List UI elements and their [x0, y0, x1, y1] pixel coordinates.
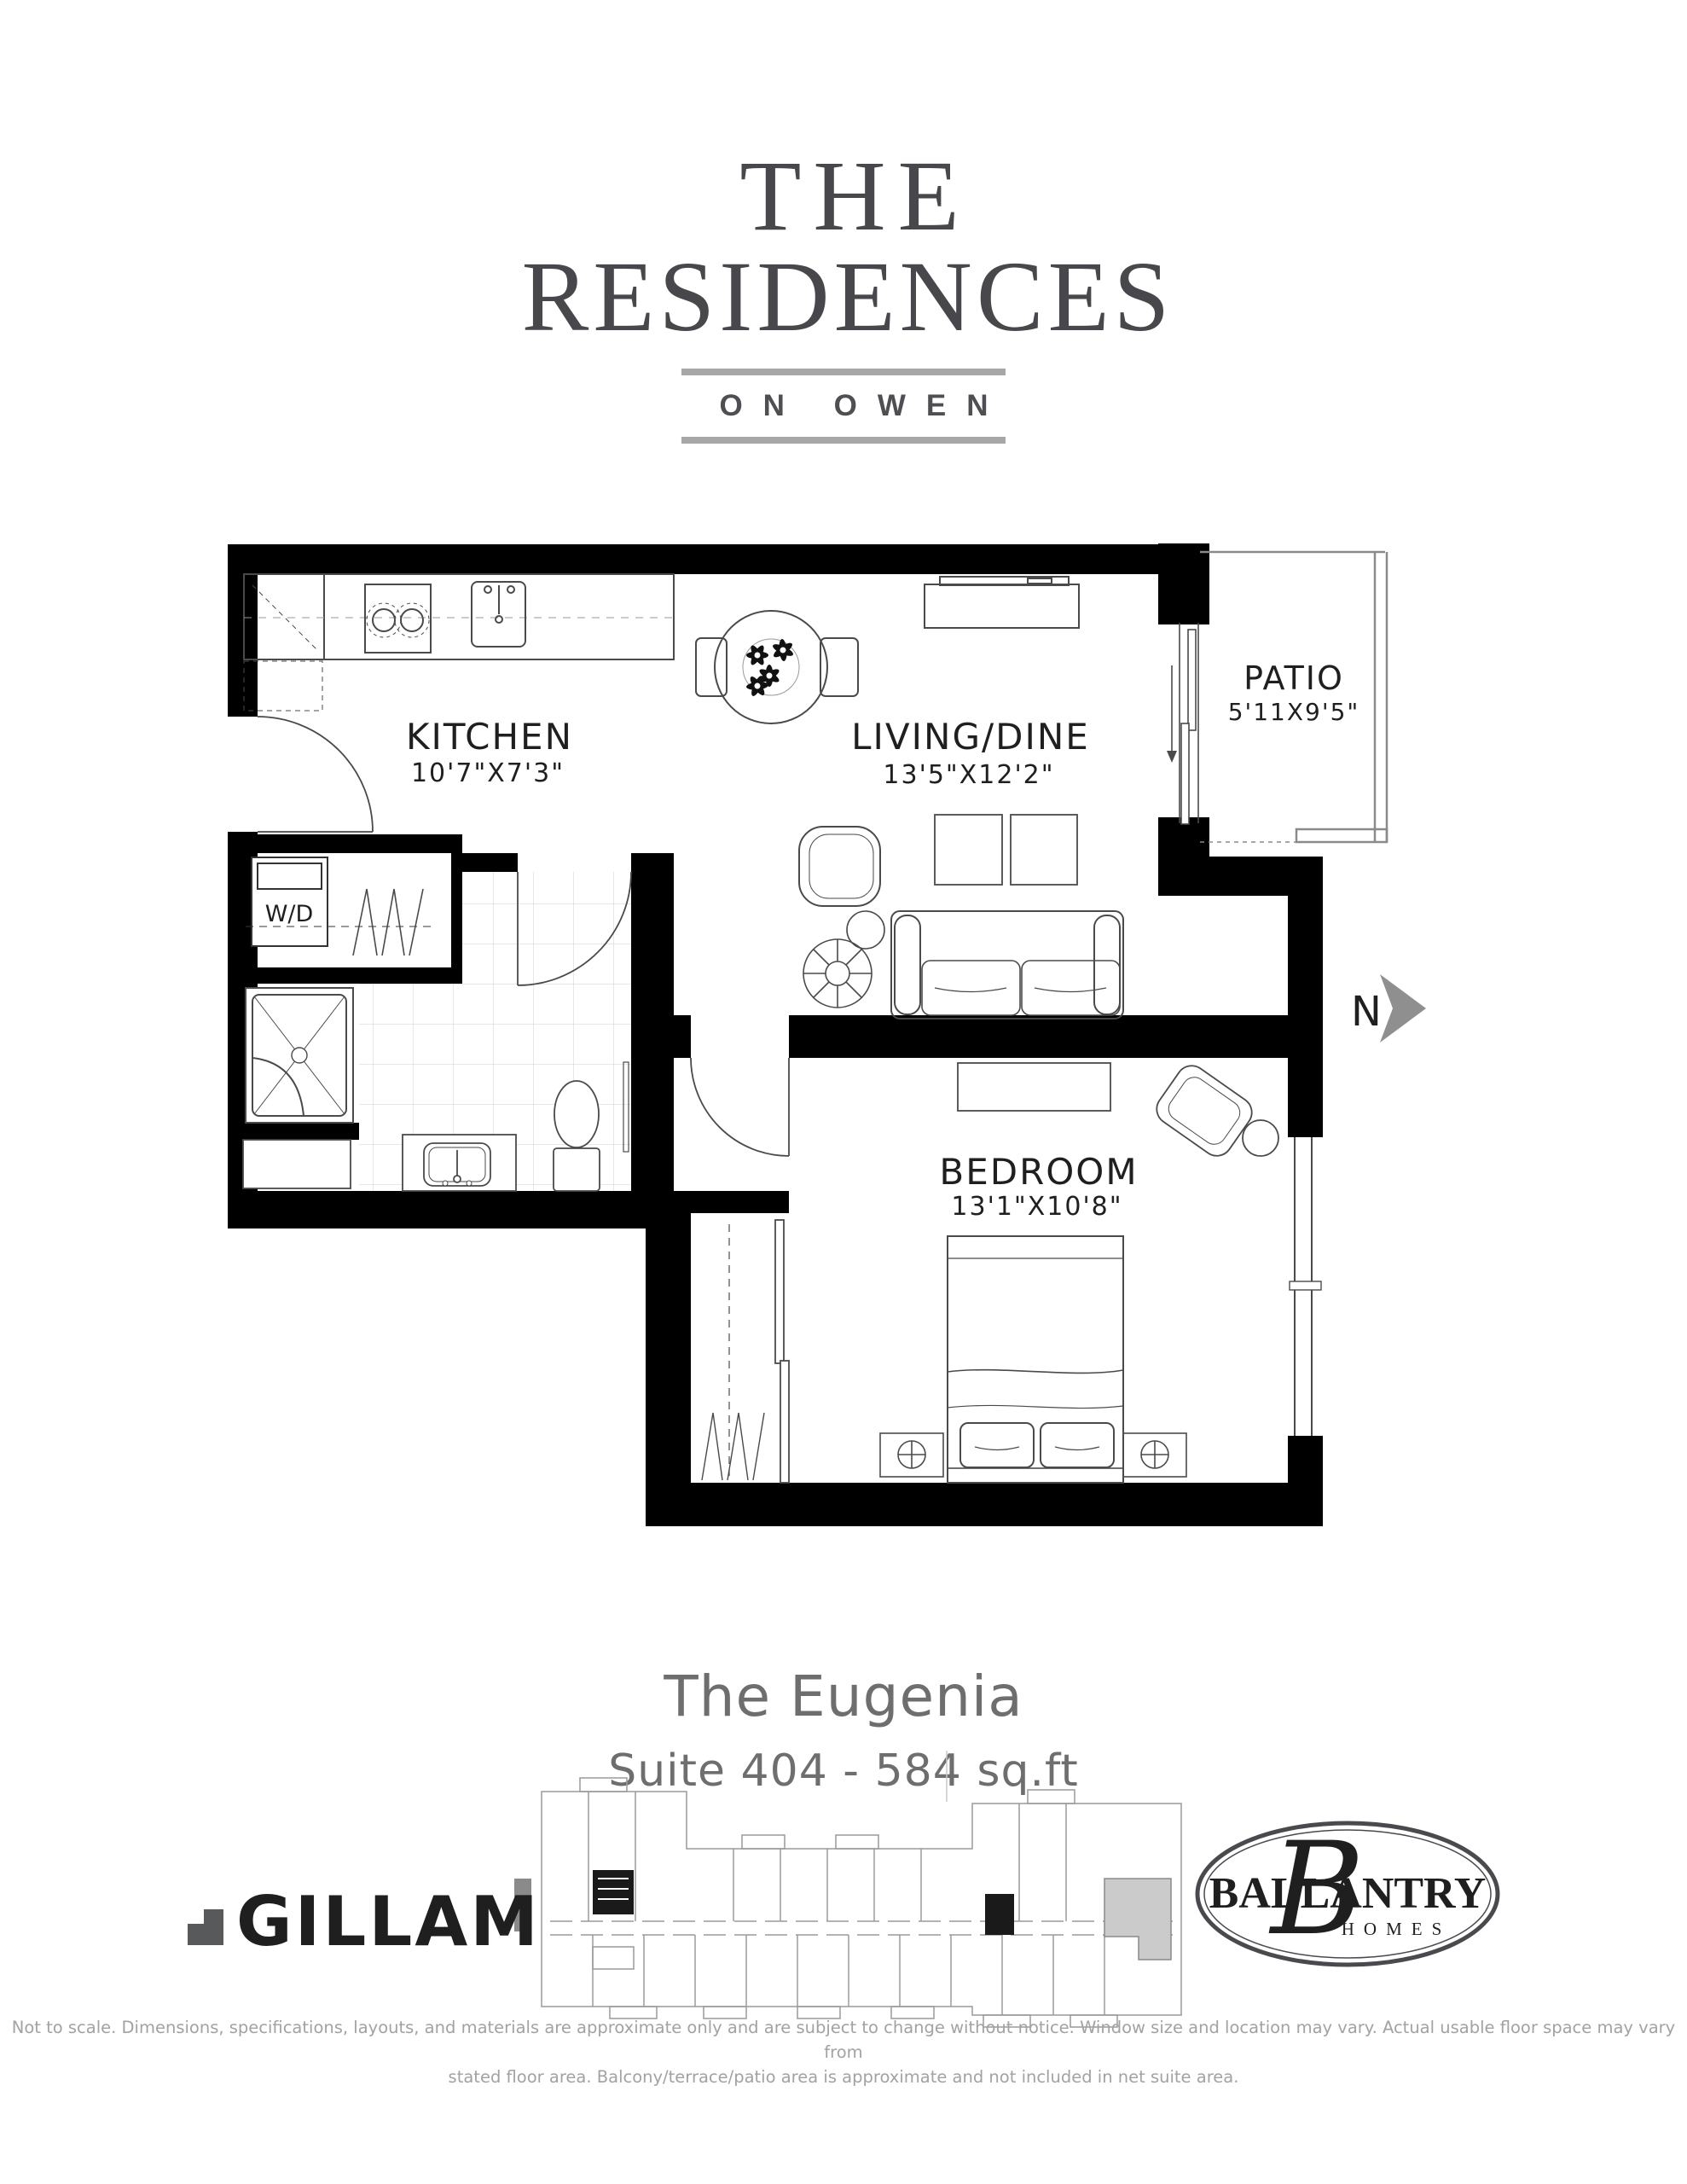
bedroom-closet — [702, 1220, 789, 1483]
ballantry-sub: HOMES — [1342, 1919, 1452, 1939]
ballantry-wordmark: BALLANTRY — [1209, 1869, 1487, 1918]
round-spoke-table — [803, 939, 872, 1008]
coat-closet-hangers — [353, 889, 423, 955]
gillam-wordmark: GILLAM — [236, 1882, 541, 1961]
sofa — [891, 911, 1123, 1019]
bedroom-label: BEDROOM — [939, 1151, 1138, 1193]
bedroom-dims: 13'1"X10'8" — [951, 1192, 1122, 1222]
washer-dryer-label: W/D — [265, 901, 314, 927]
patio-label: PATIO — [1244, 659, 1344, 697]
north-label: N — [1351, 988, 1382, 1036]
corner-chair — [1151, 1060, 1278, 1162]
bedroom-window — [1290, 1137, 1321, 1436]
stove — [365, 584, 431, 653]
shower — [246, 988, 353, 1123]
entry-door — [258, 717, 373, 832]
brand-word-the: THE — [0, 138, 1687, 254]
suite-name: The Eugenia — [0, 1664, 1687, 1729]
brand-divider-bottom — [681, 437, 1006, 444]
kitchen-counter — [244, 574, 674, 711]
ottoman-tables — [935, 815, 1077, 885]
disclaimer-line2: stated floor area. Balcony/terrace/patio… — [0, 2065, 1687, 2089]
keyplan-outline — [542, 1792, 1181, 2015]
ballantry-logo: B BALLANTRY HOMES — [1190, 1815, 1505, 1973]
floor-plan: KITCHEN 10'7"X7'3" LIVING/DINE 13'5"X12'… — [213, 503, 1493, 1544]
keyplan-stair-cores — [593, 1870, 1014, 1935]
armchair — [799, 827, 880, 906]
brand-divider-top — [681, 369, 1006, 375]
disclaimer-line1: Not to scale. Dimensions, specifications… — [0, 2015, 1687, 2065]
patio-door — [1167, 623, 1198, 824]
dresser — [958, 1063, 1110, 1111]
living-dims: 13'5"X12'2" — [883, 760, 1054, 790]
keyplan-highlighted-suite — [1104, 1879, 1171, 1960]
brand-tagline: ON OWEN — [0, 389, 1687, 423]
brand-word-residences: RESIDENCES — [0, 239, 1687, 355]
gillam-logo: GILLAM — [175, 1843, 567, 1962]
bedroom-door — [691, 1058, 789, 1156]
disclaimer: Not to scale. Dimensions, specifications… — [0, 2015, 1687, 2089]
dining-plant — [741, 635, 797, 701]
kitchen-dims: 10'7"X7'3" — [411, 758, 565, 788]
north-arrow-icon: N — [1351, 974, 1426, 1043]
key-plan — [507, 1751, 1198, 2032]
toilet — [554, 1081, 600, 1191]
floorplan-sheet: THE RESIDENCES ON OWEN — [0, 0, 1687, 2184]
linen-closet — [243, 1140, 351, 1188]
tv-console — [925, 577, 1079, 628]
kitchen-label: KITCHEN — [406, 716, 573, 758]
dining-table — [696, 611, 858, 723]
bed — [948, 1236, 1123, 1483]
patio-outline — [1200, 552, 1387, 842]
vanity-sink — [403, 1135, 516, 1191]
kitchen-sink — [472, 582, 525, 647]
living-label: LIVING/DINE — [851, 716, 1090, 758]
patio-dims: 5'11X9'5" — [1228, 698, 1360, 726]
gillam-mark-icon — [188, 1909, 223, 1945]
